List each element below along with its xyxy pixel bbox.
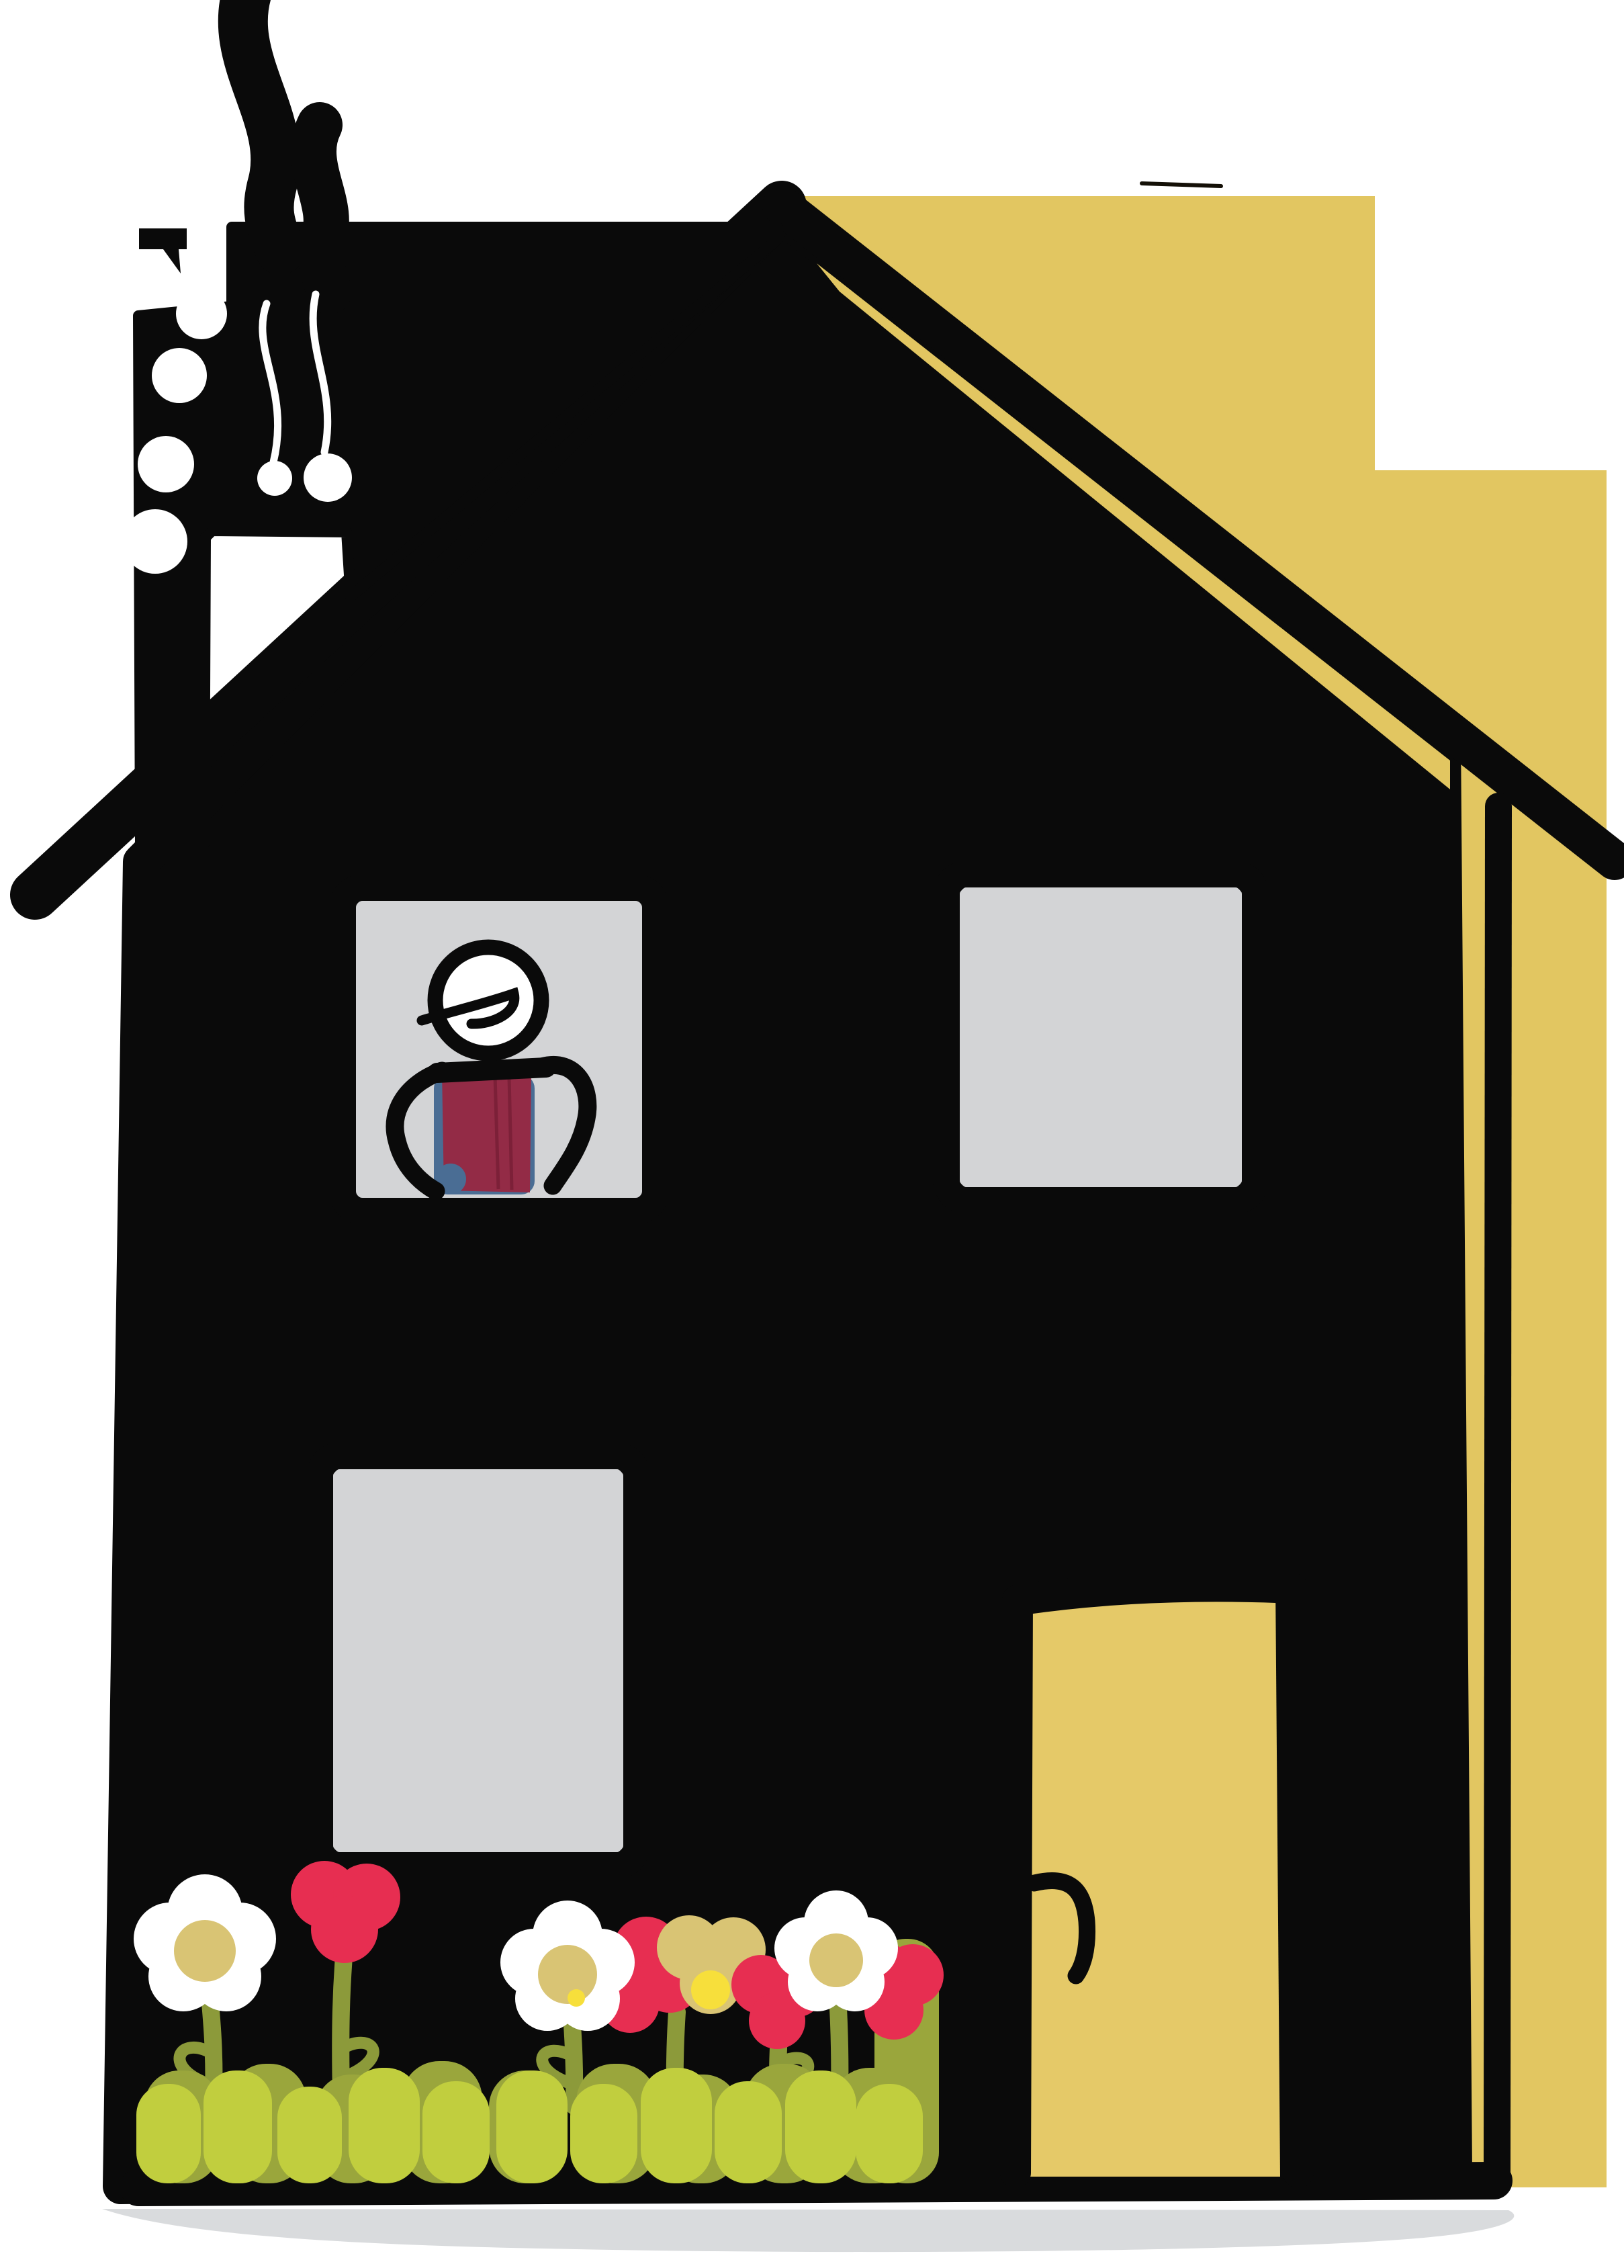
smoke-dot	[304, 453, 352, 502]
bush-picket	[349, 2068, 420, 2183]
smoke-dot	[123, 509, 187, 574]
door	[1016, 1581, 1298, 2177]
bush-picket	[277, 2087, 342, 2183]
daisy-center	[538, 1945, 597, 2004]
smoke-trail-right	[314, 125, 329, 292]
illustration-canvas	[0, 0, 1624, 2268]
bush-picket	[422, 2081, 490, 2183]
bush-picket	[641, 2068, 712, 2183]
smoke-dot	[152, 348, 207, 403]
window-upper-right	[946, 874, 1255, 1201]
smoke-dot	[138, 436, 194, 492]
red-petal	[311, 1896, 378, 1963]
tan-flower-center	[691, 1970, 730, 2009]
bush-picket	[136, 2084, 201, 2183]
bushes-front	[136, 2068, 923, 2183]
bush-picket	[496, 2070, 568, 2183]
ground-shadow	[102, 2209, 1514, 2252]
daisy-center	[809, 1933, 863, 1987]
smoke-trail-left	[243, 0, 280, 250]
daisy-center	[174, 1920, 236, 1982]
bush-picket	[856, 2084, 923, 2183]
person-shoulders	[437, 1067, 546, 1073]
window-glass	[958, 885, 1244, 1189]
smoke-dot	[257, 461, 292, 496]
window-lower-left	[320, 1456, 637, 1866]
bush-picket	[785, 2070, 856, 2183]
chimney-flag	[139, 228, 187, 273]
window-glass	[331, 1467, 625, 1854]
window-upper-left	[343, 887, 656, 1211]
right-wall-outline	[1497, 806, 1498, 2182]
bush-picket	[570, 2084, 637, 2183]
daisy-center-seed	[568, 1989, 585, 2007]
bush-picket	[204, 2070, 272, 2183]
bush-picket	[715, 2081, 782, 2183]
backdrop-hairline	[1142, 183, 1221, 186]
smoke-dot	[176, 288, 227, 339]
